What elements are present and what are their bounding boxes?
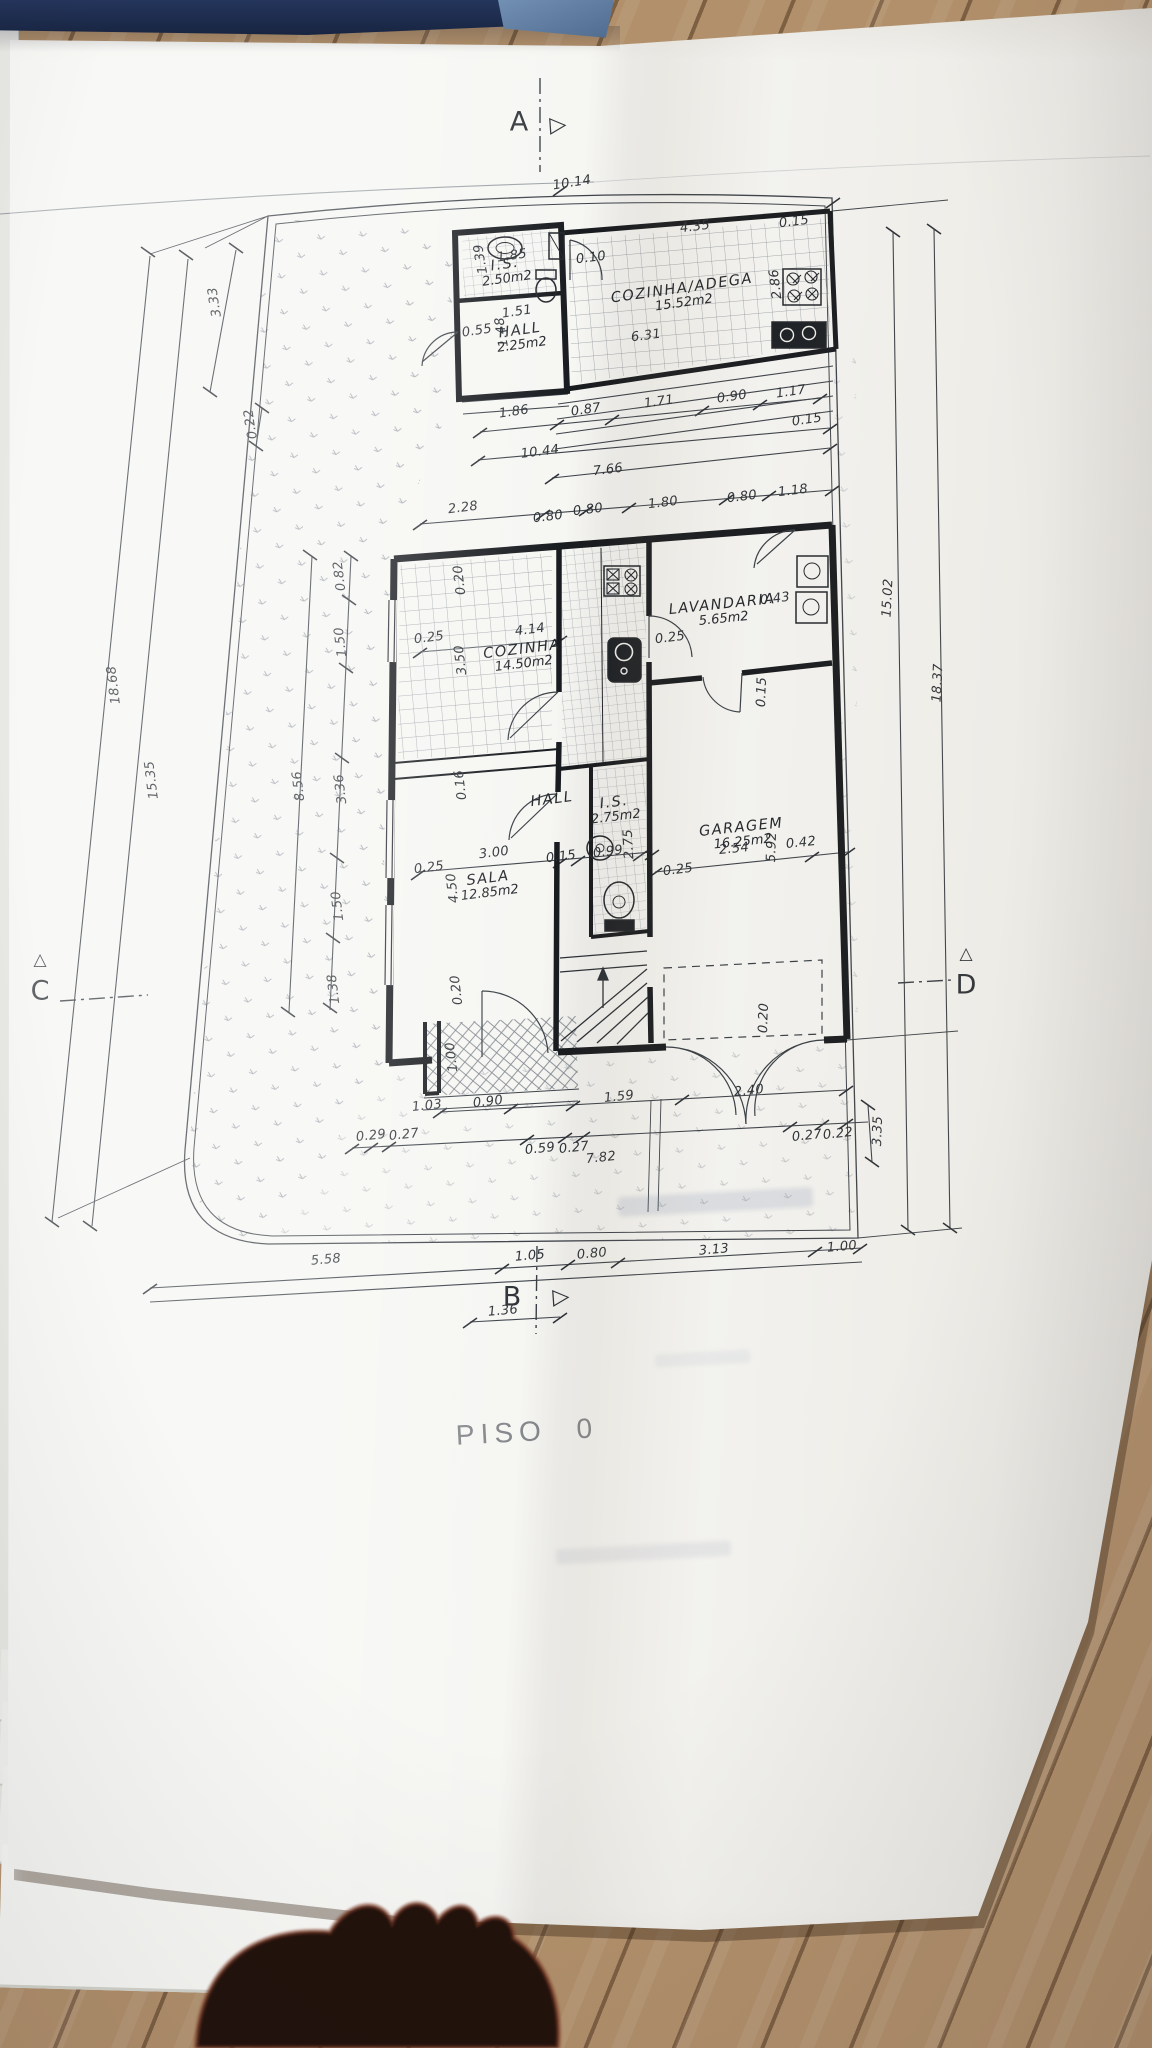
foot-silhouette [0, 0, 1152, 2048]
photo-of-floor-plan: { "title": {"floor_label": "PISO 0"}, "s… [0, 0, 1152, 2048]
